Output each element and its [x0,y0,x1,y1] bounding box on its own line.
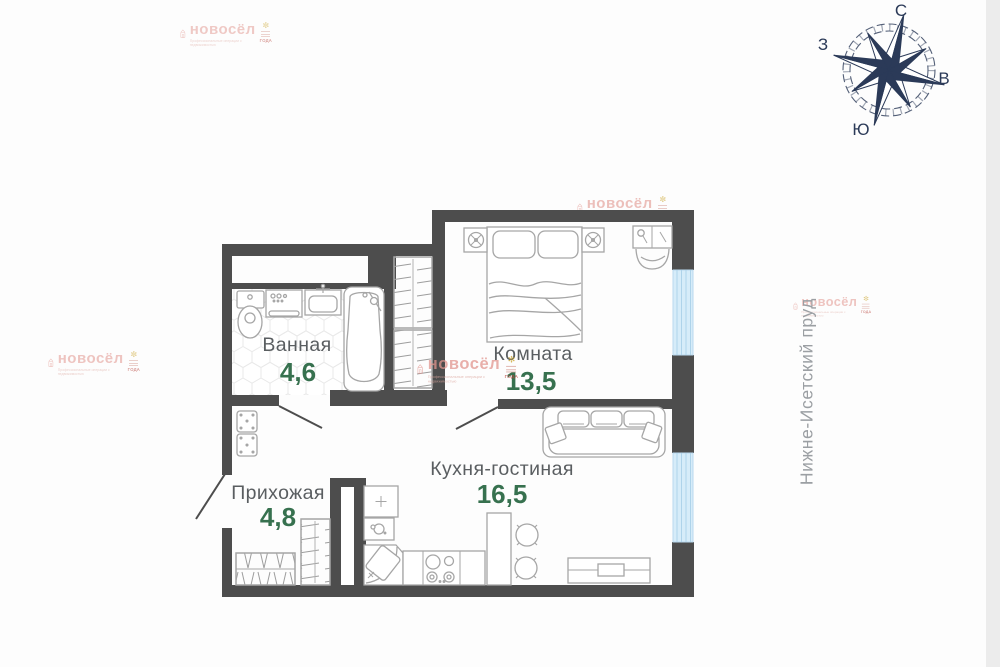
award-badge: ✼ ГОДА [505,356,519,380]
kitchen-counter-stove [403,551,485,585]
laurel-icon: ✼ [863,296,869,303]
pillow [493,231,535,258]
kitchen-window [673,453,693,542]
award-badge: ✼ ГОДА [861,296,871,314]
shoe-rack [236,553,295,585]
bedroom-window [673,270,693,355]
novosel-watermark: новосёл Профессиональные операции с недв… [180,22,272,48]
pillow [538,231,578,258]
walls [222,210,694,597]
room-area-bathroom: 4,6 [280,357,316,387]
pouf [237,411,257,432]
tv-stand [568,558,650,583]
compass-north-label: С [895,1,907,20]
wall-bathroom-bottom [228,395,279,406]
compass-rose: С В Ю З [818,0,959,140]
bed [487,227,582,342]
kitchen-cabinet [364,518,394,540]
laurel-icon: ✼ [508,356,515,365]
award-badge: ✼ ГОДА [128,351,140,372]
novosel-watermark: новосёл Профессиональные операции с недв… [417,356,518,384]
novosel-watermark: новосёл Профессиональные операции с недв… [48,351,140,377]
corner-sink-unit [364,545,403,585]
nightstand-right [582,228,604,252]
bedroom-door-swing [456,407,498,429]
wall-bottom [222,585,694,597]
chair [515,557,537,579]
wall-right-upper [672,210,694,270]
room-area-kitchen: 16,5 [477,479,528,509]
wall-top-bedroom [433,210,694,222]
sofa [543,407,665,457]
floorplan-svg: Ванная 4,6 Комната 13,5 Кухня-гостиная 1… [0,0,1000,667]
duct-shaft [341,487,354,585]
compass-south-label: Ю [852,120,869,139]
room-name-hallway: Прихожая [231,482,325,504]
novosel-house-icon [48,351,54,375]
wall-left-upper [222,244,232,475]
award-badge: ✼ ГОДА [260,22,272,43]
wall-top-bathroom [222,244,445,256]
hallway-wardrobe [301,519,330,585]
room-name-bathroom: Ванная [262,334,331,356]
bar-island [487,513,511,585]
laurel-icon: ✼ [262,22,269,30]
toilet [237,291,264,338]
floorplan-page: новосёл Профессиональные операции с недв… [0,0,1000,667]
entrance-door-swing [196,474,225,519]
wall-closet-bottom [330,390,447,406]
bathroom-door-swing [279,406,322,428]
wall-right-middle [672,355,694,453]
nightstand-left [464,228,487,252]
compass-east-label: В [938,69,949,88]
compass-west-label: З [818,35,828,54]
vanity-desk [633,226,672,269]
wall-closet-left [384,283,394,390]
location-label: Нижне-Исетский пруд [797,282,818,502]
chair [516,524,538,546]
room-name-kitchen: Кухня-гостиная [430,458,574,480]
pouf [237,434,257,456]
novosel-house-icon [417,356,423,382]
room-area-hallway: 4,8 [260,502,296,532]
wall-shaft-stub [368,256,396,283]
bathtub [344,287,384,391]
fridge [364,486,398,517]
wall-left-lower [222,528,232,585]
novosel-house-icon [180,22,186,46]
vanity-chair [636,249,669,269]
laurel-icon: ✼ [130,351,137,359]
washing-machine [266,290,302,317]
